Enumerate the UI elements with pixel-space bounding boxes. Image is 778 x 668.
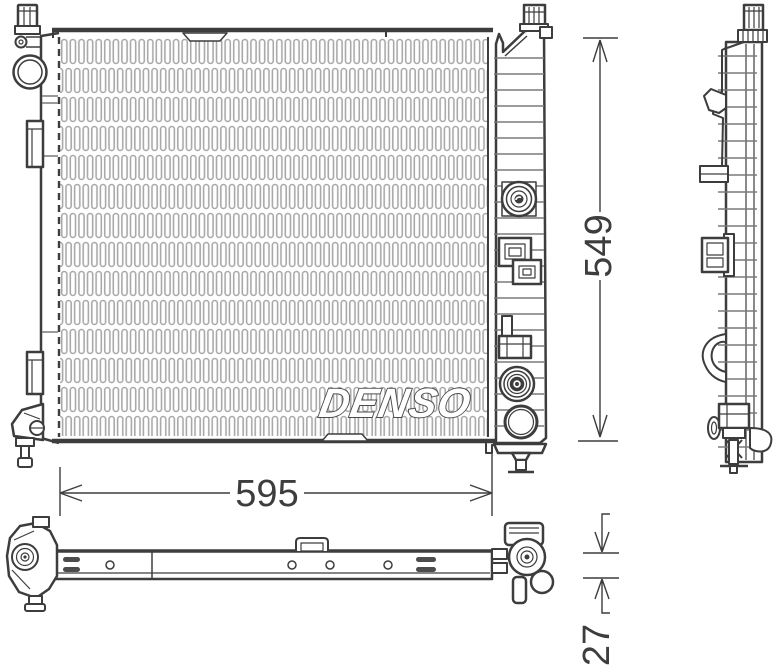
bleed-screw — [16, 37, 27, 48]
thickness-dimension: 27 — [576, 514, 619, 666]
side-foot-block — [719, 404, 749, 428]
denso-watermark: DENSO — [316, 380, 475, 426]
bottom-tab — [322, 434, 368, 441]
width-dimension-value: 595 — [235, 473, 298, 515]
side-view — [700, 5, 771, 473]
right-mounting-pin — [512, 453, 530, 460]
left-pipe-stub — [18, 5, 37, 27]
right-tank — [494, 5, 552, 472]
front-view: DENSO — [12, 5, 552, 472]
right-hose-port — [505, 406, 537, 438]
side-mounting-pin — [729, 440, 738, 464]
left-lower-bracket — [27, 352, 43, 394]
bottom-view — [7, 517, 553, 611]
height-dimension-value: 549 — [578, 214, 620, 277]
bottom-left-fitting — [7, 517, 57, 611]
drawing-canvas: DENSO 549 595 27 — [0, 0, 778, 668]
left-upper-bracket — [27, 121, 43, 167]
radiator-technical-drawing: DENSO 549 595 27 — [0, 0, 778, 668]
side-hook-lower — [703, 334, 726, 382]
left-tank — [12, 5, 59, 467]
brand-text: DENSO — [316, 380, 475, 426]
top-tab — [183, 33, 227, 41]
left-mounting-pin — [16, 438, 34, 446]
width-dimension: 595 — [60, 448, 492, 516]
height-dimension: 549 — [578, 38, 620, 441]
thickness-dimension-value: 27 — [576, 624, 618, 666]
bottom-right-fitting — [492, 523, 553, 603]
right-bracket — [499, 336, 531, 358]
core-fin-area — [60, 37, 488, 436]
